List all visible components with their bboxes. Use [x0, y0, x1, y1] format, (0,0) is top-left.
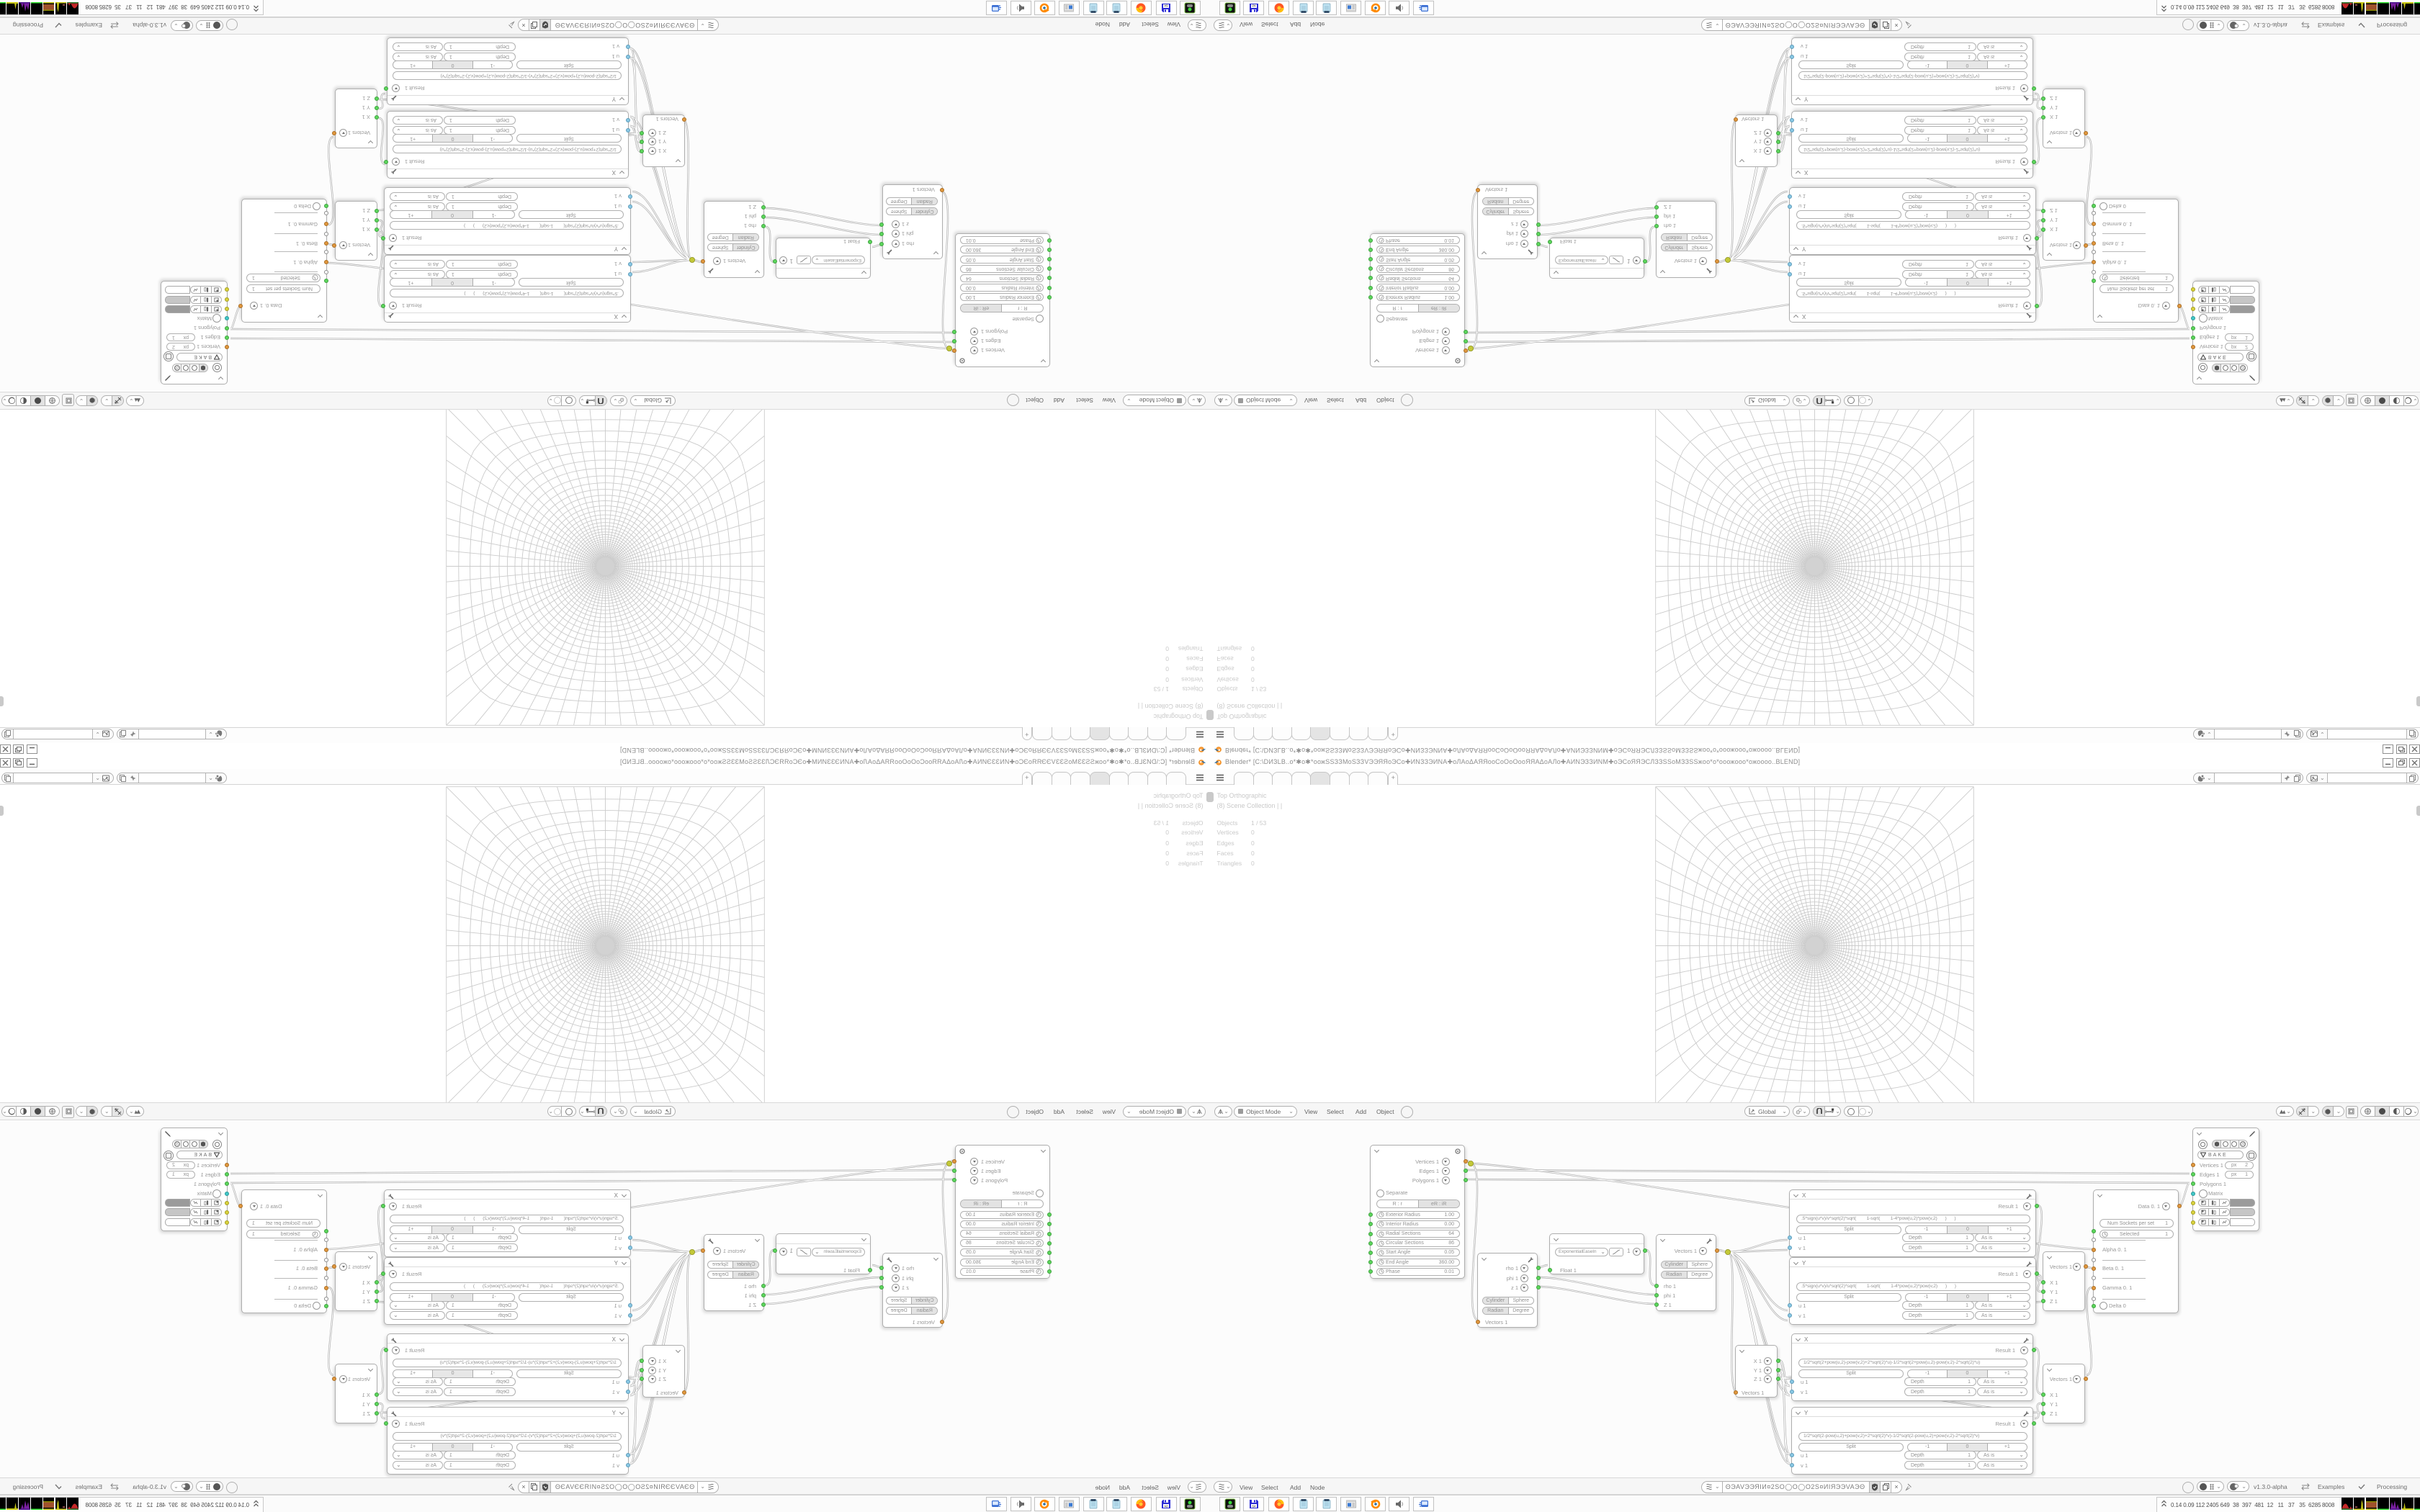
svg-text:64: 64: [1165, 1504, 1169, 1508]
svg-text:64: 64: [1252, 4, 1256, 8]
svg-text:64: 64: [1165, 4, 1169, 8]
svg-text:64: 64: [1252, 1504, 1256, 1508]
